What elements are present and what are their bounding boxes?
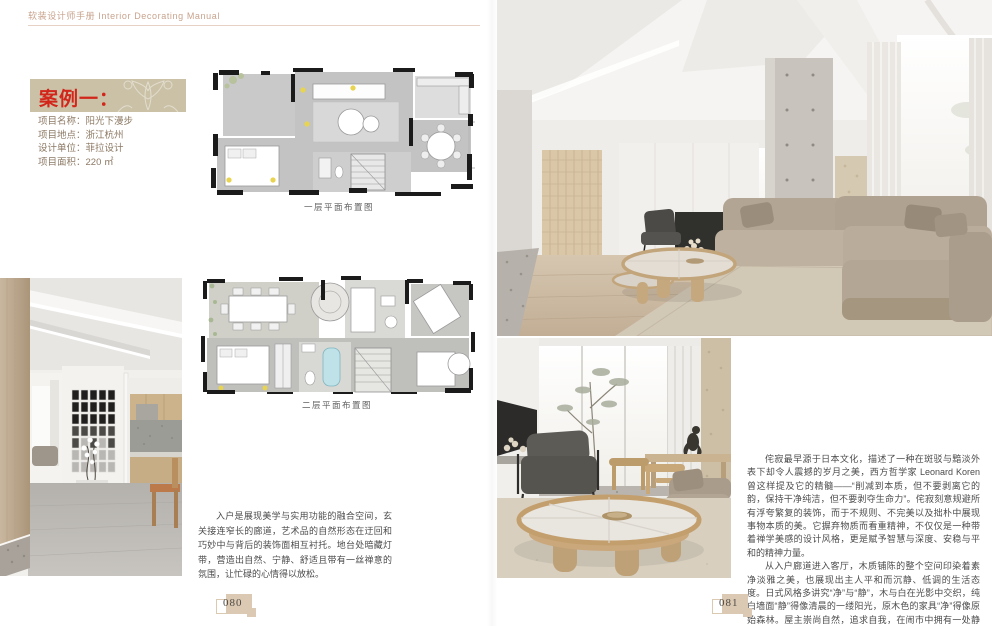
- page-badge-right: 081: [712, 594, 762, 620]
- project-location-line: 项目地点：浙江杭州: [38, 129, 133, 143]
- page-number-left: 080: [223, 597, 243, 609]
- first-floor-plan: [203, 60, 475, 196]
- left-paragraph: 入户是展现美学与实用功能的融合空间，玄关接连窄长的廊道，艺术品的自然形态在迂回和…: [198, 509, 392, 582]
- project-info: 项目名称：阳光下漫步 项目地点：浙江杭州 设计单位：菲拉设计 项目面积：220 …: [38, 115, 133, 169]
- living-room-photo: [497, 0, 992, 336]
- header-rule: [28, 25, 480, 26]
- book-header-title: 软装设计师手册 Interior Decorating Manual: [28, 9, 220, 22]
- case-title: 案例一：: [39, 84, 119, 111]
- magazine-spread: 软装设计师手册 Interior Decorating Manual 案例一： …: [0, 0, 992, 626]
- page-badge-left: 080: [216, 594, 266, 620]
- project-name-line: 项目名称：阳光下漫步: [38, 115, 133, 129]
- project-area-line: 项目面积：220 ㎡: [38, 156, 133, 170]
- badge-small-square: [743, 608, 752, 617]
- second-floor-plan-caption: 二层平面布置图: [195, 399, 479, 411]
- case-title-box: 案例一：: [30, 79, 186, 112]
- living-room-paragraph: 从入户廊道进入客厅，木质铺陈的整个空间印染着素净淡雅之美，也展现出主人平和而沉静…: [747, 560, 980, 626]
- wabi-sabi-paragraph: 侘寂最早源于日本文化，描述了一种在斑驳与黯淡外表下却令人震撼的岁月之美，西方哲学…: [747, 453, 980, 560]
- project-designer-line: 设计单位：菲拉设计: [38, 142, 133, 156]
- second-floor-plan: [195, 274, 479, 394]
- badge-small-square: [247, 608, 256, 617]
- page-number-right: 081: [719, 597, 739, 609]
- page-gutter: [487, 0, 497, 626]
- right-body-text: 侘寂最早源于日本文化，描述了一种在斑驳与黯淡外表下却令人震撼的岁月之美，西方哲学…: [747, 453, 980, 626]
- detail-photo: [497, 338, 731, 578]
- left-body-text: 入户是展现美学与实用功能的融合空间，玄关接连窄长的廊道，艺术品的自然形态在迂回和…: [198, 509, 392, 582]
- first-floor-plan-caption: 一层平面布置图: [203, 201, 475, 213]
- hallway-photo: [0, 278, 182, 584]
